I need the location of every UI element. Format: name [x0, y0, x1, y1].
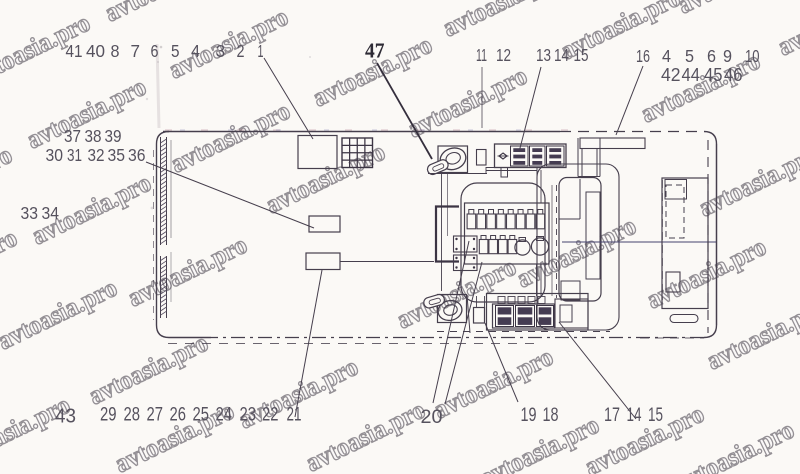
svg-text:19: 19 — [521, 404, 537, 426]
svg-text:37: 37 — [64, 126, 81, 146]
svg-text:47: 47 — [365, 39, 385, 63]
svg-text:5: 5 — [685, 46, 694, 66]
svg-text:24: 24 — [216, 404, 233, 426]
svg-text:4: 4 — [191, 41, 200, 61]
svg-text:20: 20 — [421, 406, 443, 428]
svg-text:33: 33 — [21, 203, 39, 223]
svg-text:27: 27 — [147, 404, 164, 426]
svg-text:13: 13 — [536, 45, 551, 65]
svg-text:46: 46 — [724, 65, 743, 85]
svg-text:18: 18 — [543, 404, 559, 426]
svg-text:25: 25 — [193, 404, 210, 426]
svg-text:17: 17 — [604, 404, 620, 426]
svg-text:38: 38 — [85, 126, 102, 146]
svg-text:1: 1 — [258, 41, 264, 61]
svg-text:5: 5 — [171, 41, 180, 61]
svg-text:32: 32 — [88, 145, 105, 165]
svg-text:3: 3 — [216, 41, 225, 61]
svg-text:9: 9 — [723, 46, 732, 66]
svg-text:22: 22 — [262, 404, 279, 426]
svg-text:30: 30 — [46, 145, 64, 165]
svg-text:15: 15 — [574, 45, 589, 65]
svg-text:21: 21 — [287, 404, 302, 426]
svg-text:29: 29 — [100, 404, 117, 426]
svg-text:11: 11 — [476, 45, 487, 65]
svg-text:26: 26 — [170, 404, 187, 426]
svg-text:16: 16 — [636, 46, 650, 66]
svg-text:14: 14 — [554, 45, 569, 65]
svg-text:15: 15 — [648, 404, 663, 426]
svg-text:6: 6 — [151, 41, 159, 61]
svg-text:10: 10 — [745, 46, 760, 66]
svg-text:12: 12 — [496, 45, 511, 65]
svg-text:34: 34 — [42, 203, 60, 223]
svg-text:7: 7 — [131, 41, 141, 61]
svg-text:31: 31 — [67, 145, 82, 165]
svg-text:36: 36 — [128, 145, 146, 165]
svg-text:23: 23 — [240, 404, 257, 426]
svg-text:41: 41 — [66, 41, 83, 61]
svg-text:42: 42 — [661, 65, 681, 85]
svg-text:8: 8 — [111, 41, 120, 61]
svg-text:4: 4 — [662, 46, 671, 66]
svg-text:40: 40 — [86, 41, 105, 61]
svg-text:44: 44 — [682, 65, 701, 85]
svg-text:39: 39 — [105, 126, 122, 146]
svg-text:45: 45 — [704, 65, 723, 85]
svg-text:6: 6 — [707, 46, 716, 66]
svg-text:2: 2 — [237, 41, 245, 61]
svg-text:35: 35 — [108, 145, 126, 165]
svg-text:14: 14 — [627, 404, 642, 426]
svg-text:28: 28 — [124, 404, 141, 426]
svg-text:43: 43 — [55, 406, 76, 428]
